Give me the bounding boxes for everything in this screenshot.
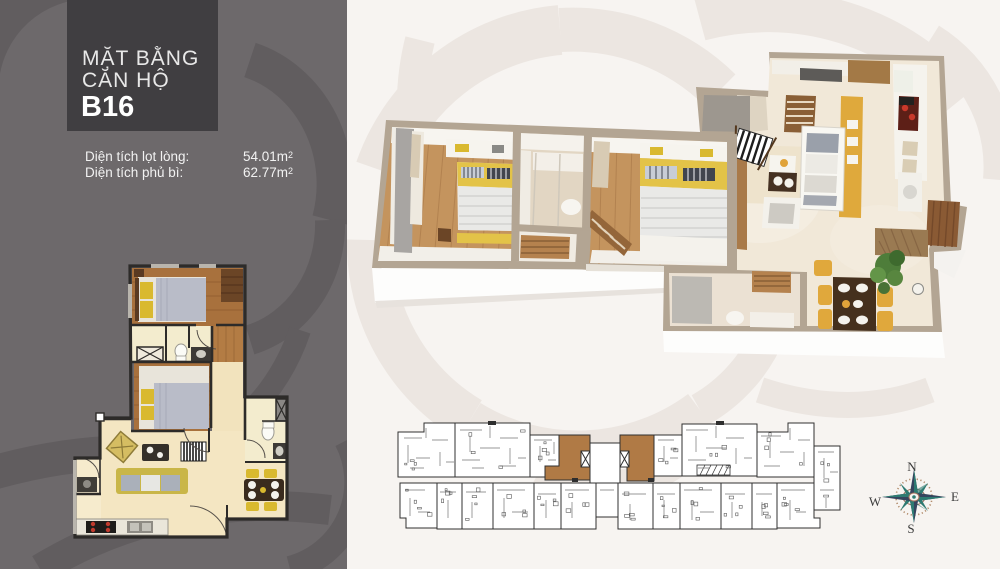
svg-text:62.77m2: 62.77m2 (243, 165, 293, 180)
svg-text:CĂN HỘ: CĂN HỘ (82, 69, 170, 92)
svg-text:Diện tích lọt lòng:: Diện tích lọt lòng: (85, 149, 189, 164)
svg-text:Diện tích phủ bì:: Diện tích phủ bì: (85, 165, 183, 180)
svg-text:N: N (907, 459, 917, 474)
svg-text:W: W (869, 494, 882, 509)
svg-text:MẶT BẰNG: MẶT BẰNG (82, 46, 199, 70)
svg-text:E: E (951, 489, 959, 504)
svg-text:54.01m2: 54.01m2 (243, 149, 293, 164)
svg-text:S: S (907, 521, 914, 536)
svg-text:B16: B16 (81, 91, 134, 123)
